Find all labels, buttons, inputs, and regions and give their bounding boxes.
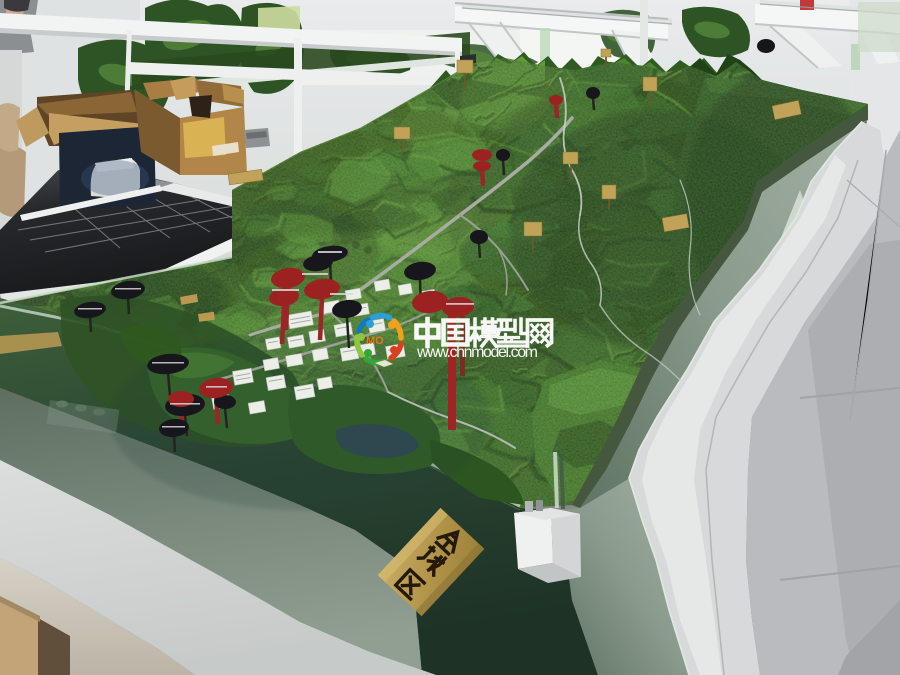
svg-text:MO: MO: [366, 335, 384, 347]
svg-text:www.chnmodel.com: www.chnmodel.com: [416, 344, 538, 361]
